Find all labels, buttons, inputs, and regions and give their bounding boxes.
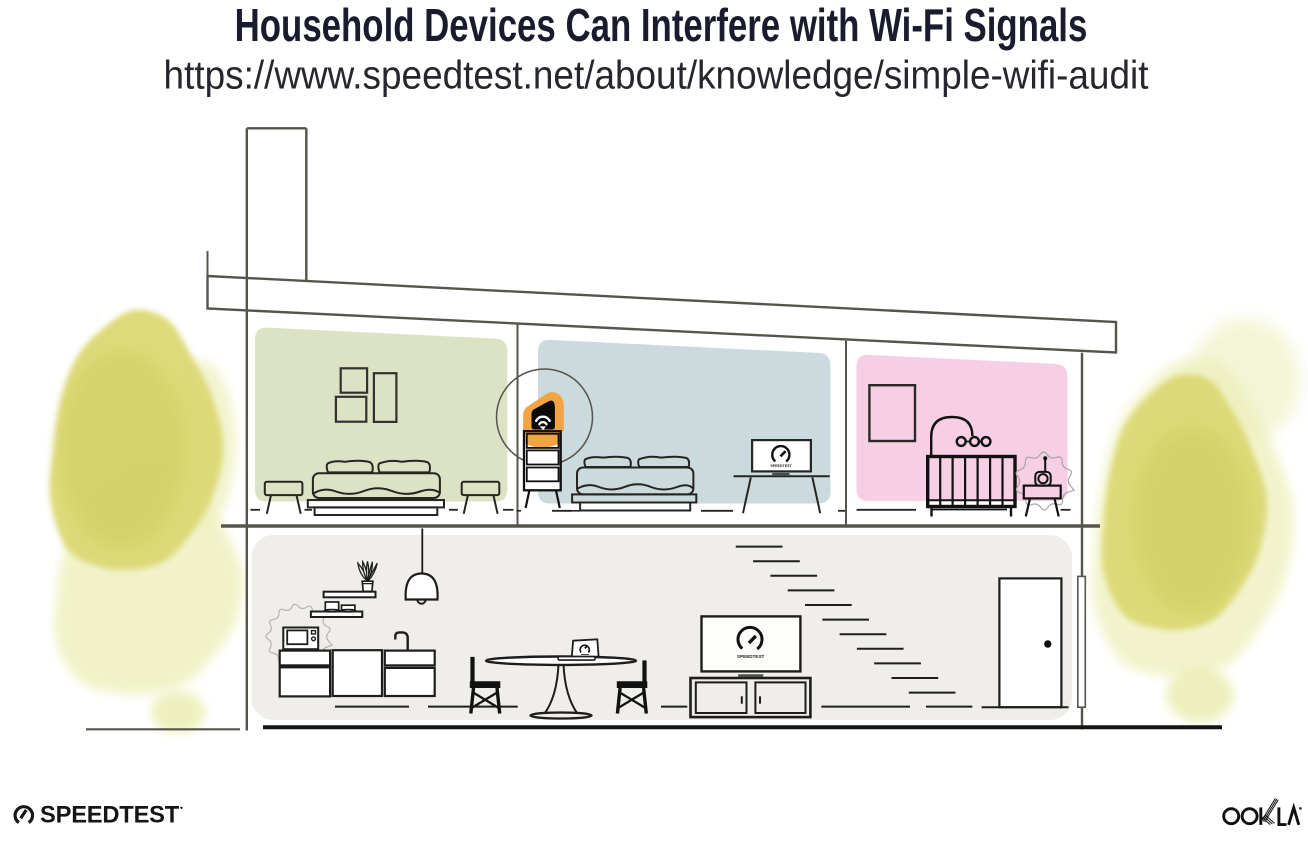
svg-text:SPEEDTEST: SPEEDTEST	[770, 464, 792, 468]
svg-text:SPEEDTEST: SPEEDTEST	[40, 803, 180, 829]
svg-text:Household Devices Can Interfer: Household Devices Can Interfere with Wi-…	[235, 0, 1088, 51]
svg-text:https://www.speedtest.net/abou: https://www.speedtest.net/about/knowledg…	[164, 53, 1149, 98]
svg-text:SPEEDTEST: SPEEDTEST	[737, 654, 765, 659]
